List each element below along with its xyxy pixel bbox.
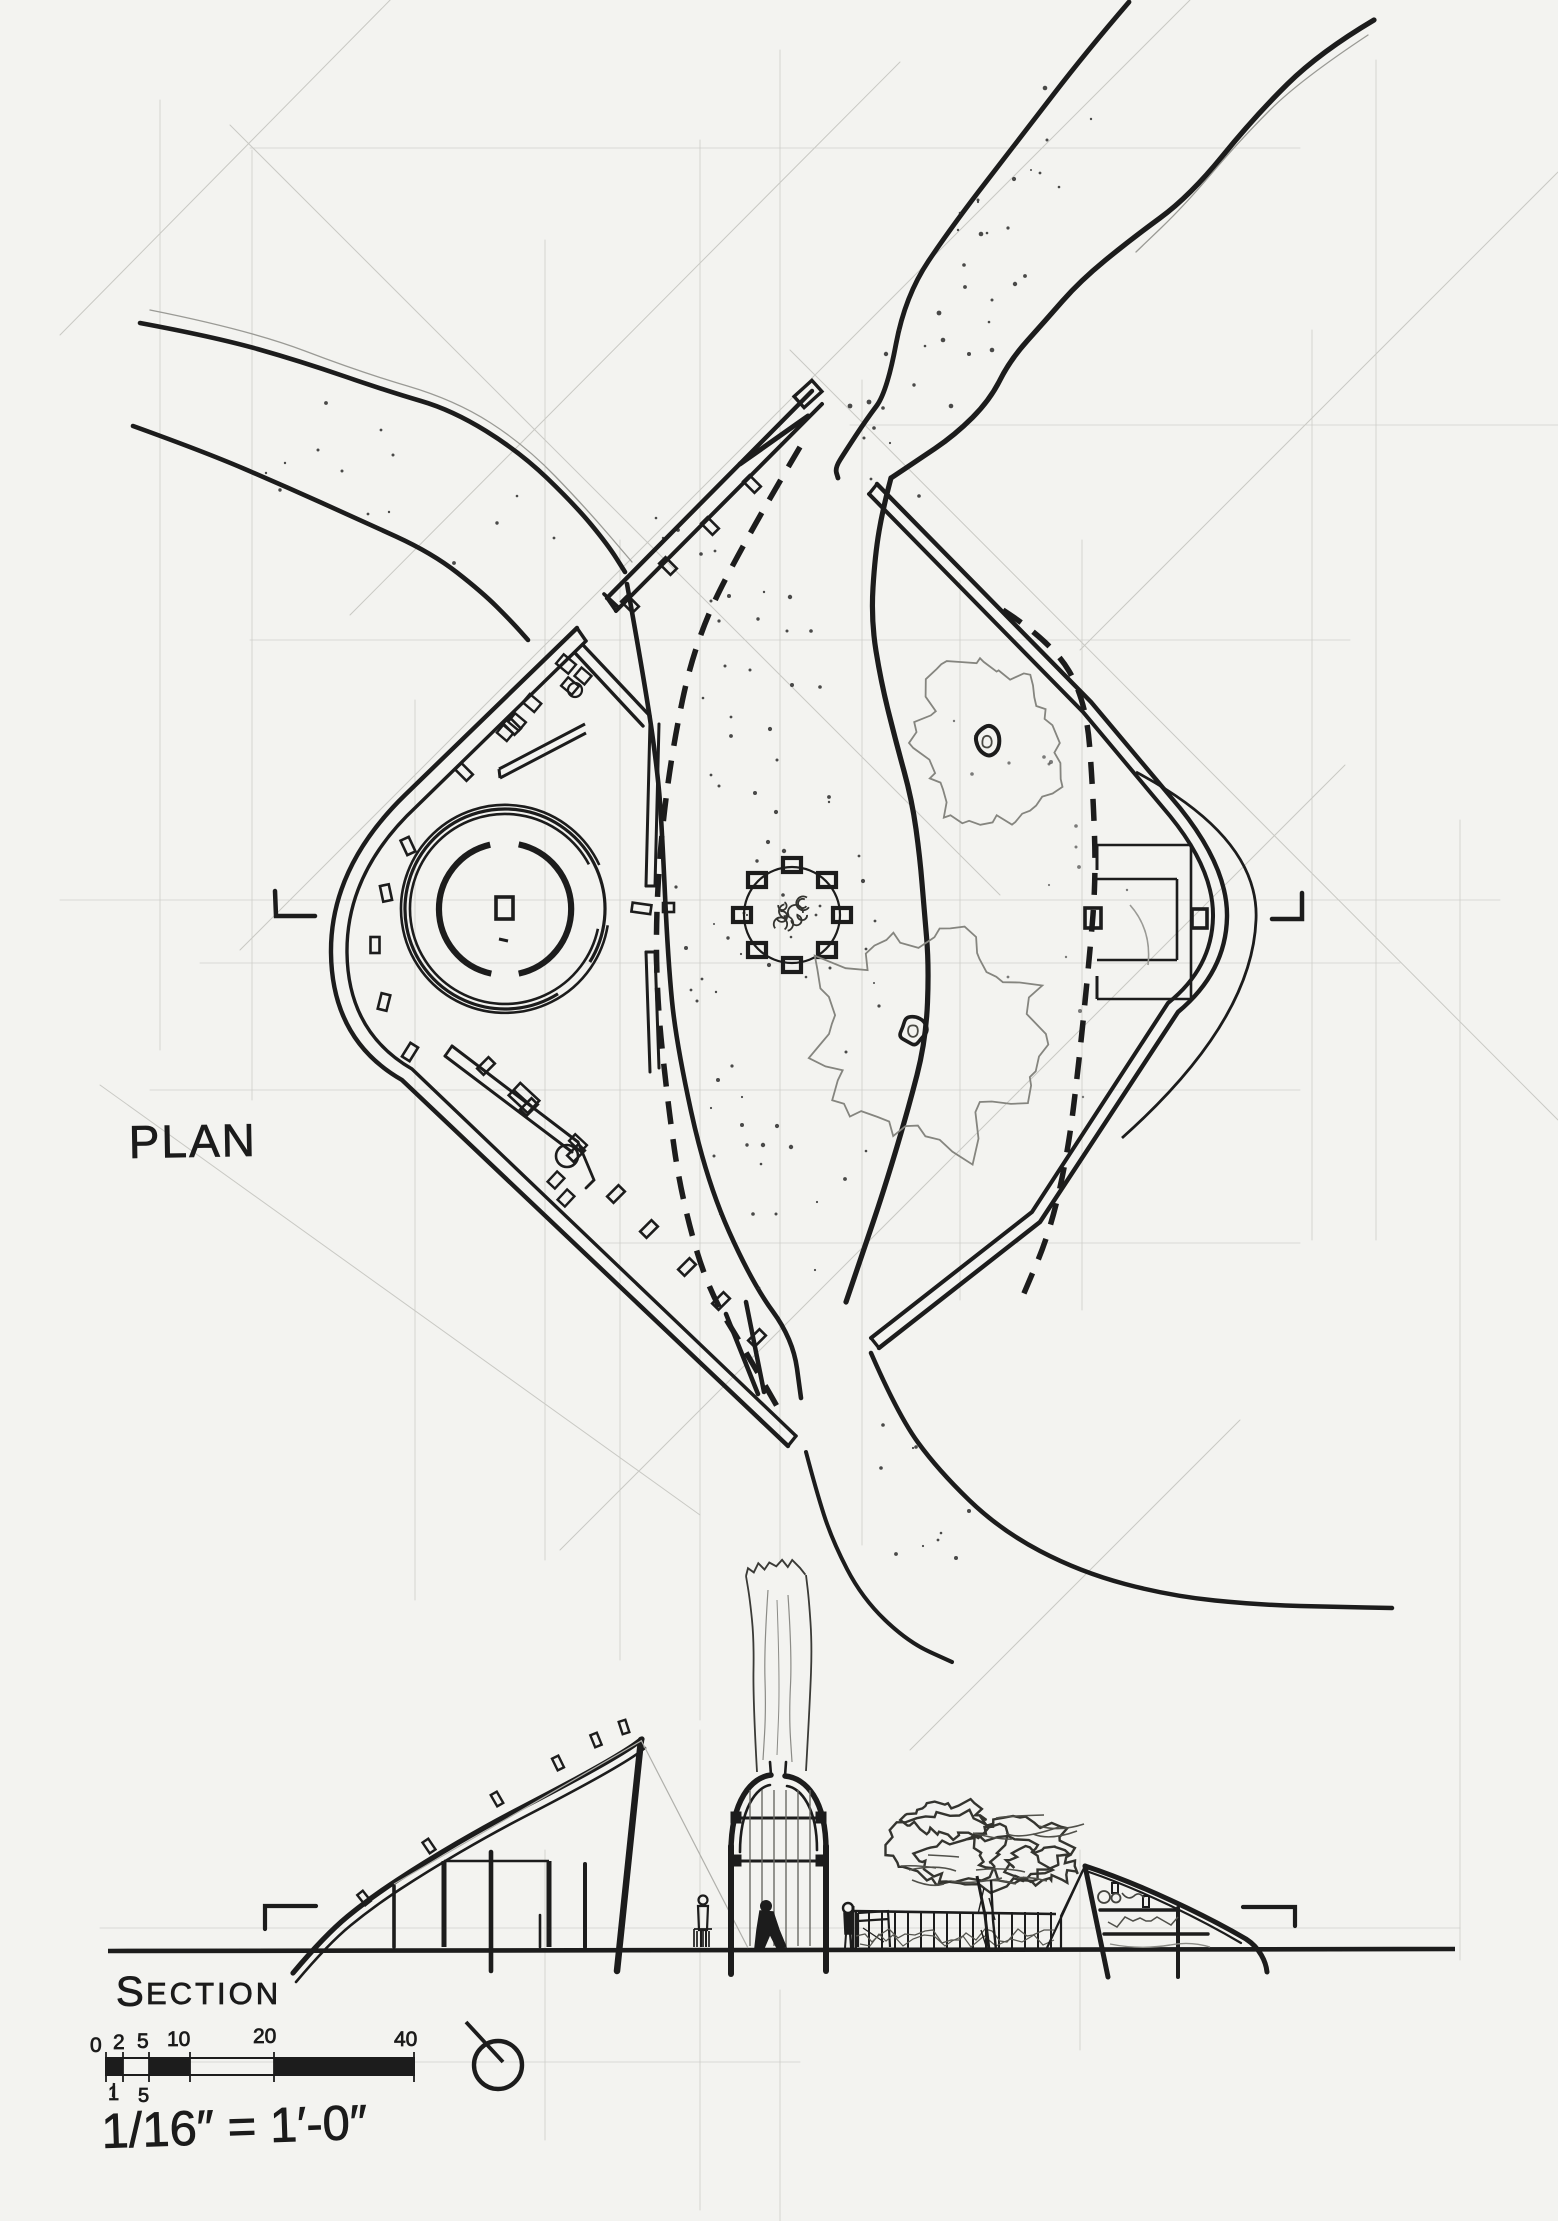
svg-text:PLAN: PLAN bbox=[128, 1114, 257, 1168]
svg-text:1/16″ = 1′-0″: 1/16″ = 1′-0″ bbox=[100, 2096, 368, 2159]
svg-text:20: 20 bbox=[253, 2025, 276, 2048]
svg-text:5: 5 bbox=[137, 2030, 149, 2053]
svg-text:0: 0 bbox=[90, 2034, 102, 2057]
svg-text:10: 10 bbox=[167, 2028, 190, 2051]
svg-text:ECTION: ECTION bbox=[146, 1976, 281, 2011]
svg-text:2: 2 bbox=[113, 2031, 125, 2054]
svg-text:40: 40 bbox=[394, 2028, 417, 2051]
svg-text:S: S bbox=[115, 1968, 144, 2015]
svg-text:1: 1 bbox=[108, 2083, 119, 2105]
